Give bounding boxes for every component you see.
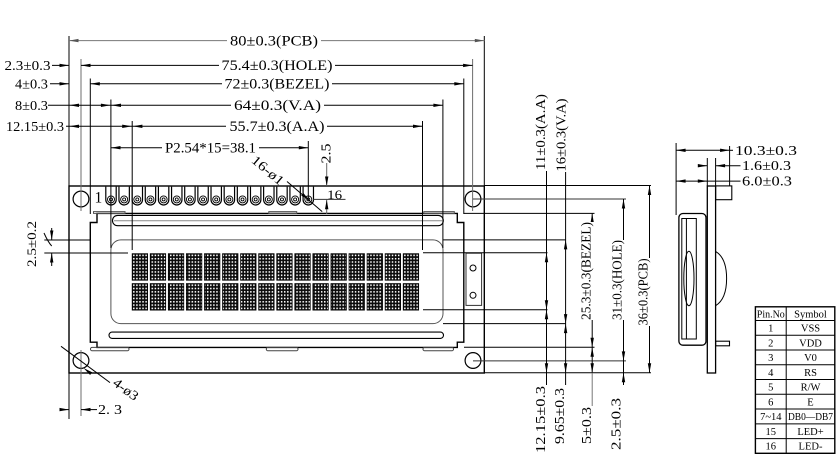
svg-text:2.5±0.2: 2.5±0.2 (24, 221, 39, 267)
svg-text:11±0.3(A.A): 11±0.3(A.A) (533, 94, 548, 170)
svg-text:VDD: VDD (799, 338, 822, 349)
svg-text:3: 3 (768, 353, 773, 364)
svg-text:1: 1 (768, 324, 773, 335)
svg-text:Pin.No: Pin.No (757, 309, 785, 320)
svg-text:VSS: VSS (801, 324, 820, 335)
svg-text:6.0±0.3: 6.0±0.3 (742, 174, 792, 189)
svg-text:7~14: 7~14 (760, 412, 782, 423)
svg-text:36±0.3(PCB): 36±0.3(PCB) (636, 259, 651, 326)
svg-text:55.7±0.3(A.A): 55.7±0.3(A.A) (230, 119, 325, 135)
svg-text:LED-: LED- (799, 442, 823, 453)
svg-text:8±0.3: 8±0.3 (15, 98, 48, 113)
svg-text:RS: RS (804, 368, 817, 379)
svg-text:75.4±0.3(HOLE): 75.4±0.3(HOLE) (222, 58, 333, 74)
svg-text:2.5±0.3: 2.5±0.3 (609, 398, 624, 450)
svg-text:6: 6 (768, 397, 773, 408)
svg-text:2.5: 2.5 (319, 143, 334, 163)
svg-text:12.15±0.3: 12.15±0.3 (533, 386, 548, 453)
svg-text:16±0.3(V.A): 16±0.3(V.A) (554, 99, 569, 172)
svg-text:31±0.3(HOLE): 31±0.3(HOLE) (610, 240, 625, 320)
svg-text:V0: V0 (804, 353, 817, 364)
svg-text:4: 4 (768, 368, 774, 379)
svg-text:5: 5 (768, 383, 773, 394)
svg-text:P2.54*15=38.1: P2.54*15=38.1 (165, 141, 256, 157)
svg-text:2: 2 (768, 338, 773, 349)
svg-text:LED+: LED+ (797, 427, 823, 438)
svg-text:10.3±0.3: 10.3±0.3 (735, 143, 797, 158)
svg-text:64±0.3(V.A): 64±0.3(V.A) (234, 98, 321, 114)
svg-text:2.3±0.3: 2.3±0.3 (5, 58, 51, 73)
svg-text:72±0.3(BEZEL): 72±0.3(BEZEL) (225, 77, 330, 93)
svg-text:1.6±0.3: 1.6±0.3 (742, 158, 791, 173)
svg-text:16: 16 (327, 187, 343, 202)
svg-text:80±0.3(PCB): 80±0.3(PCB) (230, 33, 318, 49)
svg-text:25.3±0.3(BEZEL): 25.3±0.3(BEZEL) (579, 222, 594, 320)
svg-text:E: E (807, 397, 813, 408)
svg-text:9.65±0.3: 9.65±0.3 (552, 388, 567, 444)
svg-text:16: 16 (766, 442, 777, 453)
svg-text:DB0—DB7: DB0—DB7 (788, 412, 833, 423)
svg-text:12.15±0.3: 12.15±0.3 (6, 119, 64, 134)
svg-text:R/W: R/W (801, 383, 821, 394)
svg-text:1: 1 (95, 190, 103, 207)
svg-text:5±0.3: 5±0.3 (579, 407, 594, 444)
svg-text:Symbol: Symbol (794, 309, 827, 320)
svg-text:15: 15 (766, 427, 777, 438)
svg-text:4±0.3: 4±0.3 (15, 77, 48, 92)
svg-text:2. 3: 2. 3 (98, 402, 122, 417)
